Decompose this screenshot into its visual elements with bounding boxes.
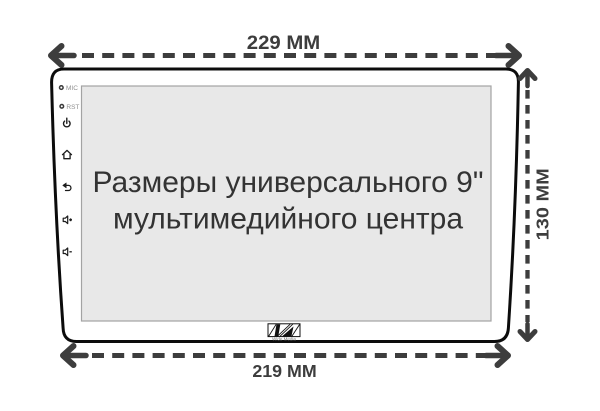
svg-text:MIC: MIC	[66, 85, 78, 92]
svg-text:Wide Media: Wide Media	[272, 337, 296, 342]
svg-text:130 MM: 130 MM	[534, 168, 554, 240]
svg-text:219 MM: 219 MM	[252, 361, 316, 381]
svg-text:мультимедийного центра: мультимедийного центра	[113, 203, 463, 236]
svg-text:Размеры универсального 9": Размеры универсального 9"	[92, 166, 483, 199]
svg-text:229 MM: 229 MM	[247, 33, 320, 54]
svg-text:RST: RST	[66, 104, 79, 111]
